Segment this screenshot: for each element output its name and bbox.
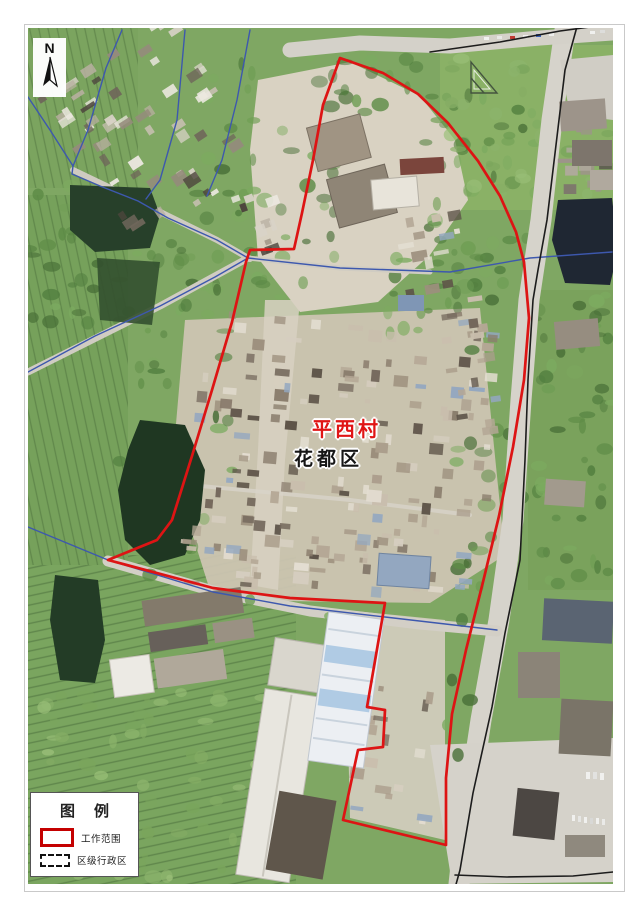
village-name-label: 平西村 — [312, 413, 381, 442]
legend-item-label: 工作范围 — [81, 831, 121, 845]
legend-title: 图 例 — [40, 800, 131, 821]
district-name-label: 花都区 — [294, 444, 363, 471]
north-arrow-icon — [40, 55, 60, 89]
work-scope-swatch-icon — [40, 828, 74, 847]
legend-item-label: 区级行政区 — [77, 853, 127, 867]
legend-item-work-scope: 工作范围 — [40, 828, 131, 847]
district-boundary-swatch-icon — [40, 854, 70, 867]
legend: 图 例 工作范围 区级行政区 — [30, 792, 139, 877]
legend-item-district: 区级行政区 — [40, 853, 131, 867]
north-label: N — [44, 41, 54, 55]
north-arrow: N — [33, 38, 66, 97]
planning-map-page: N 平西村 花都区 图 例 工作范围 区级行政区 — [0, 0, 640, 904]
